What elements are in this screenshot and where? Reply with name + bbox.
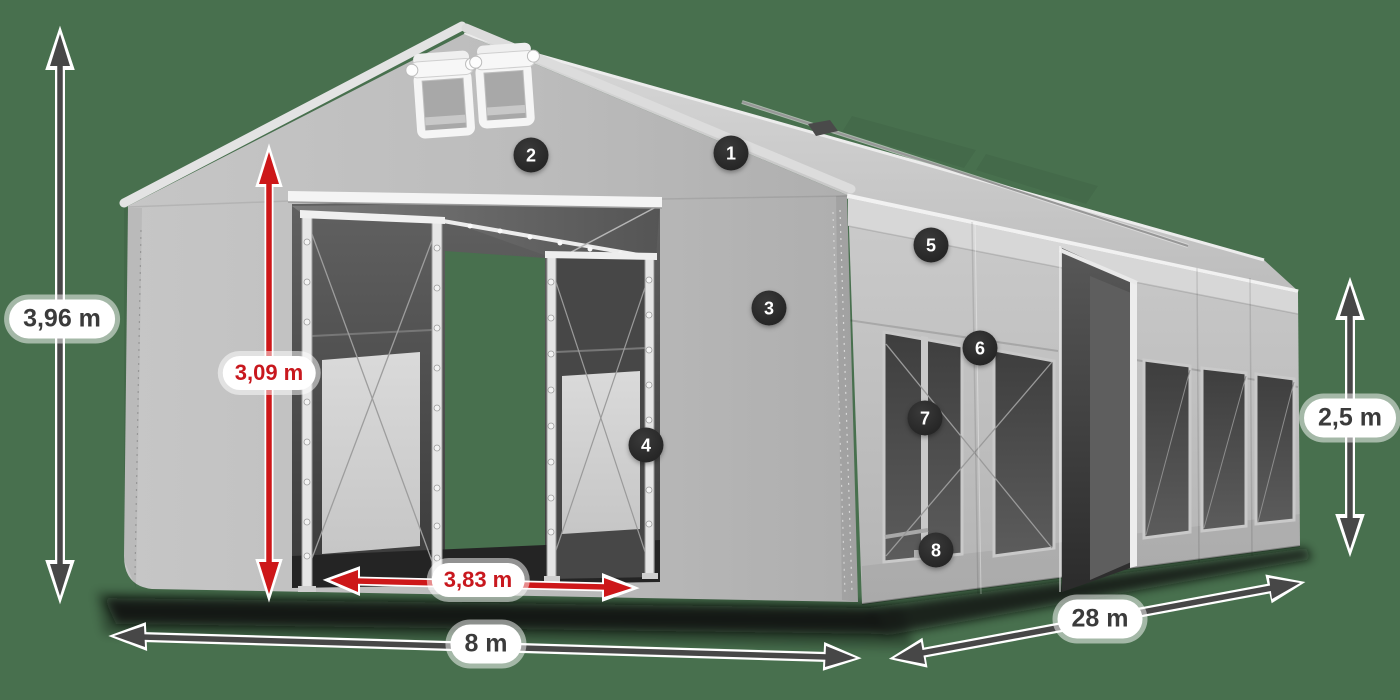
tent-product-illustration: 3,96 m 3,09 m 3,83 m 8 m 28 m 2,5 m 1 2 … (0, 0, 1400, 700)
callout-3: 3 (752, 291, 787, 326)
dimension-label-total-height: 3,96 m (9, 300, 115, 339)
passage-pole (1130, 280, 1137, 568)
beam-knob (558, 241, 563, 246)
side-window (1256, 374, 1294, 524)
dimension-label-length: 28 m (1058, 600, 1143, 639)
dimension-label-door-width: 3,83 m (432, 563, 525, 597)
door-panel-window (562, 371, 640, 534)
side-passage (1060, 246, 1137, 592)
pole-foot (298, 586, 316, 592)
side-window (1144, 360, 1190, 538)
beam-knob (588, 247, 593, 252)
dimension-label-side-height: 2,5 m (1304, 399, 1396, 438)
callout-2: 2 (514, 138, 549, 173)
callout-1: 1 (714, 136, 749, 171)
inner-door-frame (544, 251, 658, 582)
see-through (445, 251, 545, 562)
dimension-label-door-height: 3,09 m (223, 356, 316, 390)
callout-5: 5 (914, 228, 949, 263)
callout-6: 6 (963, 331, 998, 366)
side-window (994, 350, 1054, 556)
roller-cap (469, 56, 482, 69)
callout-4: 4 (629, 428, 664, 463)
side-window (1202, 368, 1246, 531)
door-pole (432, 218, 442, 588)
roller-cap (405, 64, 418, 77)
roller-cap (527, 50, 540, 63)
pole-foot (642, 573, 658, 579)
door-pole (645, 254, 654, 576)
callout-7: 7 (908, 401, 943, 436)
callout-8: 8 (919, 533, 954, 568)
beam-knob (528, 235, 533, 240)
tent-illustration (0, 0, 1400, 700)
beam-knob (498, 229, 503, 234)
door-panel-window (322, 352, 420, 554)
interior-pole (921, 336, 928, 557)
dimension-label-front-width: 8 m (450, 625, 521, 664)
beam-knob (468, 224, 473, 229)
front-opening (288, 191, 662, 592)
